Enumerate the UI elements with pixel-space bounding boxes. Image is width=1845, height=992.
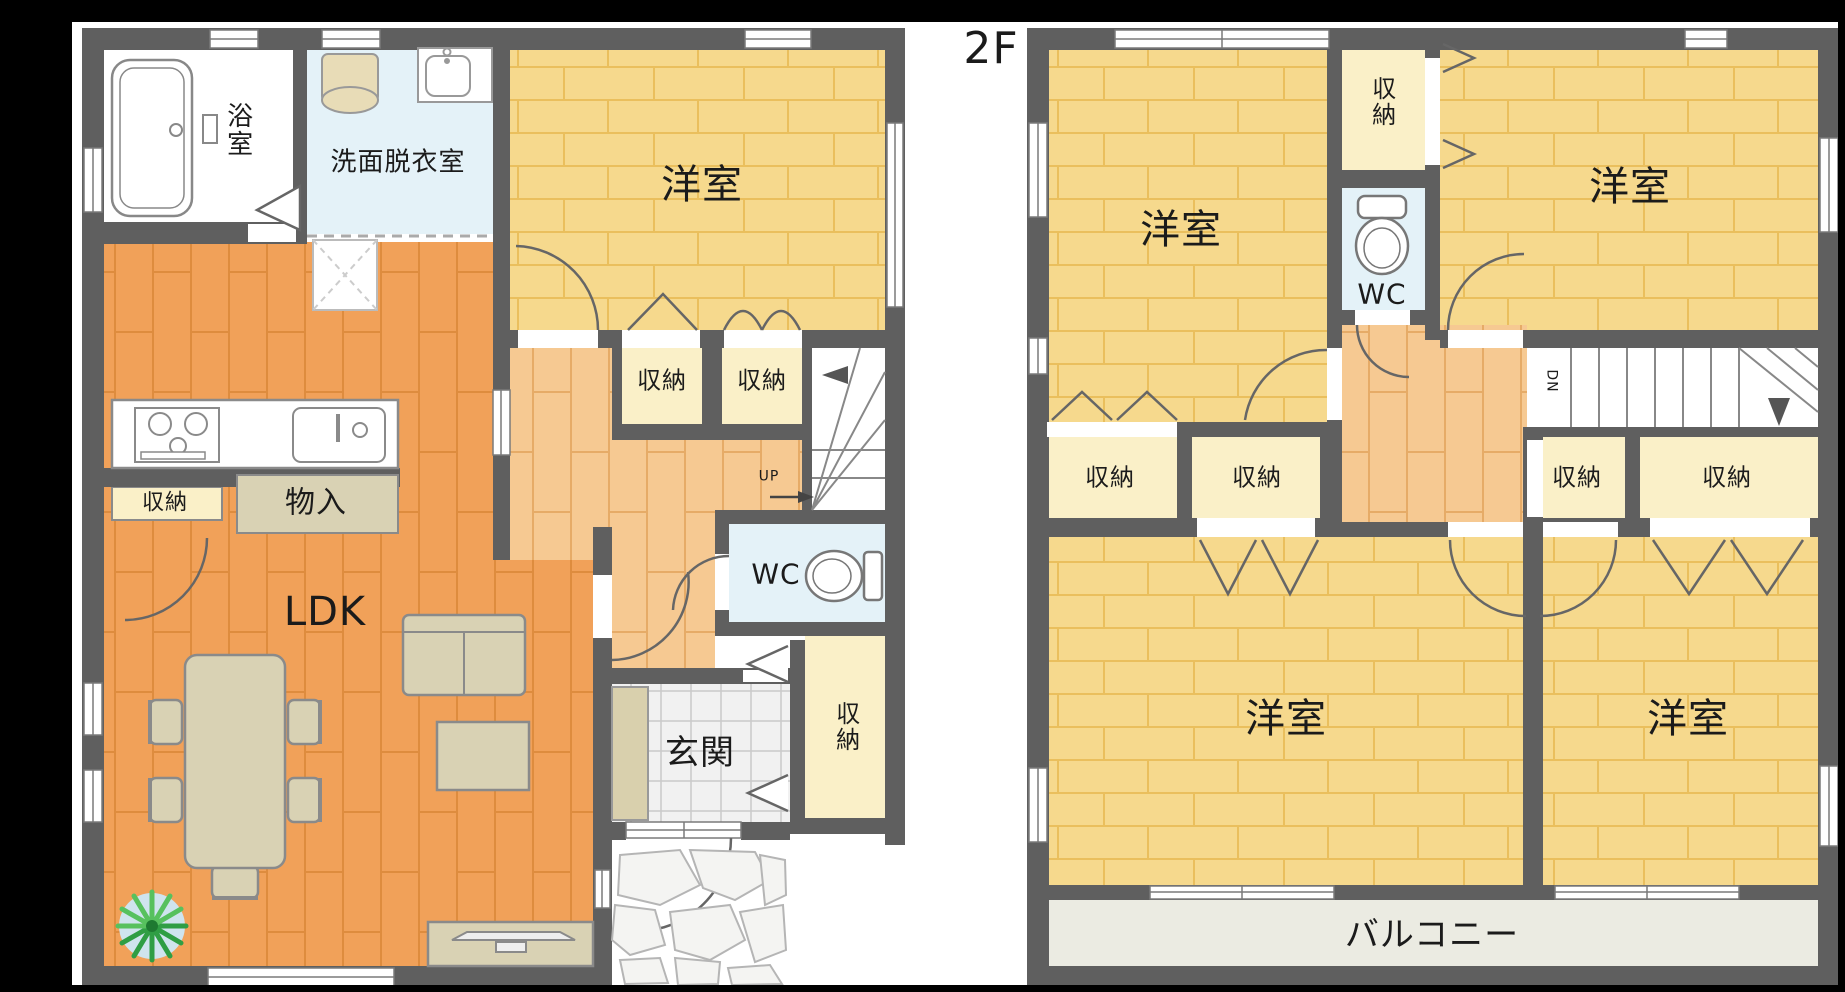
frame-bar-right bbox=[1838, 0, 1845, 992]
label-closet: 物入 bbox=[285, 487, 347, 519]
label-stairs-down: DN bbox=[1544, 369, 1559, 392]
label-washroom: 洗面脱衣室 bbox=[330, 149, 465, 176]
label-balcony: バルコニー bbox=[1345, 918, 1519, 954]
label-kitchen-storage: 収納 bbox=[142, 491, 188, 514]
label-storage-3-2f: 収納 bbox=[1552, 465, 1602, 490]
label-western-room-1f: 洋室 bbox=[661, 164, 743, 206]
washing-machine-icon bbox=[322, 54, 378, 113]
frame-bar-top bbox=[0, 0, 1845, 22]
label-stairs-up: UP bbox=[759, 470, 780, 485]
label-western-room-ne: 洋室 bbox=[1589, 166, 1671, 208]
toilet-2f-icon bbox=[1356, 196, 1408, 274]
shoe-cabinet bbox=[612, 687, 648, 820]
label-ldk: LDK bbox=[284, 591, 366, 633]
label-entrance-storage: 収納 bbox=[832, 701, 857, 753]
frame-bar-left bbox=[0, 0, 72, 992]
label-storage-1-2f: 収納 bbox=[1085, 465, 1135, 490]
label-storage-4-2f: 収納 bbox=[1702, 465, 1752, 490]
frame-bar-bottom bbox=[0, 985, 1845, 992]
label-western-room-nw: 洋室 bbox=[1140, 209, 1222, 251]
toilet-1f-icon bbox=[806, 551, 882, 601]
label-western-room-sw: 洋室 bbox=[1245, 698, 1327, 740]
label-wc-1f: WC bbox=[751, 559, 800, 588]
kitchen-counter-icon bbox=[112, 400, 398, 468]
label-floor2-title: 2F bbox=[963, 26, 1018, 72]
floorplan-canvas: 浴室 洗面脱衣室 洋室 収納 収納 UP WC 収納 物入 LDK 玄関 収納 … bbox=[0, 0, 1845, 992]
label-wc-2f: WC bbox=[1357, 279, 1406, 308]
label-entrance: 玄関 bbox=[665, 736, 735, 772]
label-bathroom: 浴室 bbox=[223, 102, 250, 158]
stone-path bbox=[612, 850, 786, 985]
label-storage-2-2f: 収納 bbox=[1232, 465, 1282, 490]
label-storage-top-2f: 収納 bbox=[1368, 76, 1393, 128]
label-storage-hall-a: 収納 bbox=[637, 368, 687, 393]
floorplan-graphics bbox=[0, 0, 1845, 992]
sofa bbox=[403, 615, 525, 695]
washbasin-icon bbox=[418, 48, 492, 102]
coffee-table bbox=[437, 722, 529, 790]
tv-stand bbox=[428, 922, 593, 966]
label-storage-hall-b: 収納 bbox=[737, 368, 787, 393]
label-western-room-se: 洋室 bbox=[1647, 698, 1729, 740]
